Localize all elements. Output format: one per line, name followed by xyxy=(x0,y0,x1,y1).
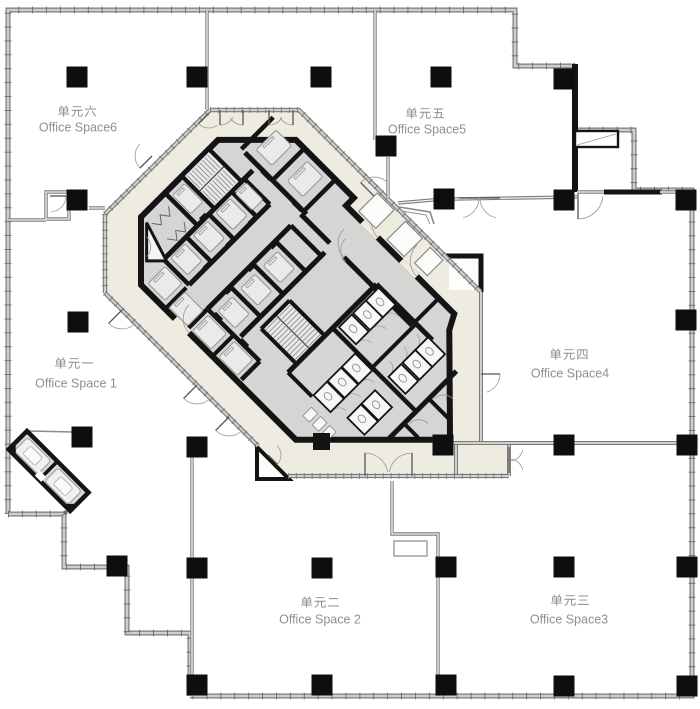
svg-text:Office Space5: Office Space5 xyxy=(388,123,466,137)
svg-text:Office Space 1: Office Space 1 xyxy=(35,377,117,391)
svg-text:Office Space 2: Office Space 2 xyxy=(279,613,361,627)
svg-text:Office Space6: Office Space6 xyxy=(39,121,117,135)
svg-text:Office Space4: Office Space4 xyxy=(531,367,609,381)
svg-text:Office Space3: Office Space3 xyxy=(530,613,608,627)
